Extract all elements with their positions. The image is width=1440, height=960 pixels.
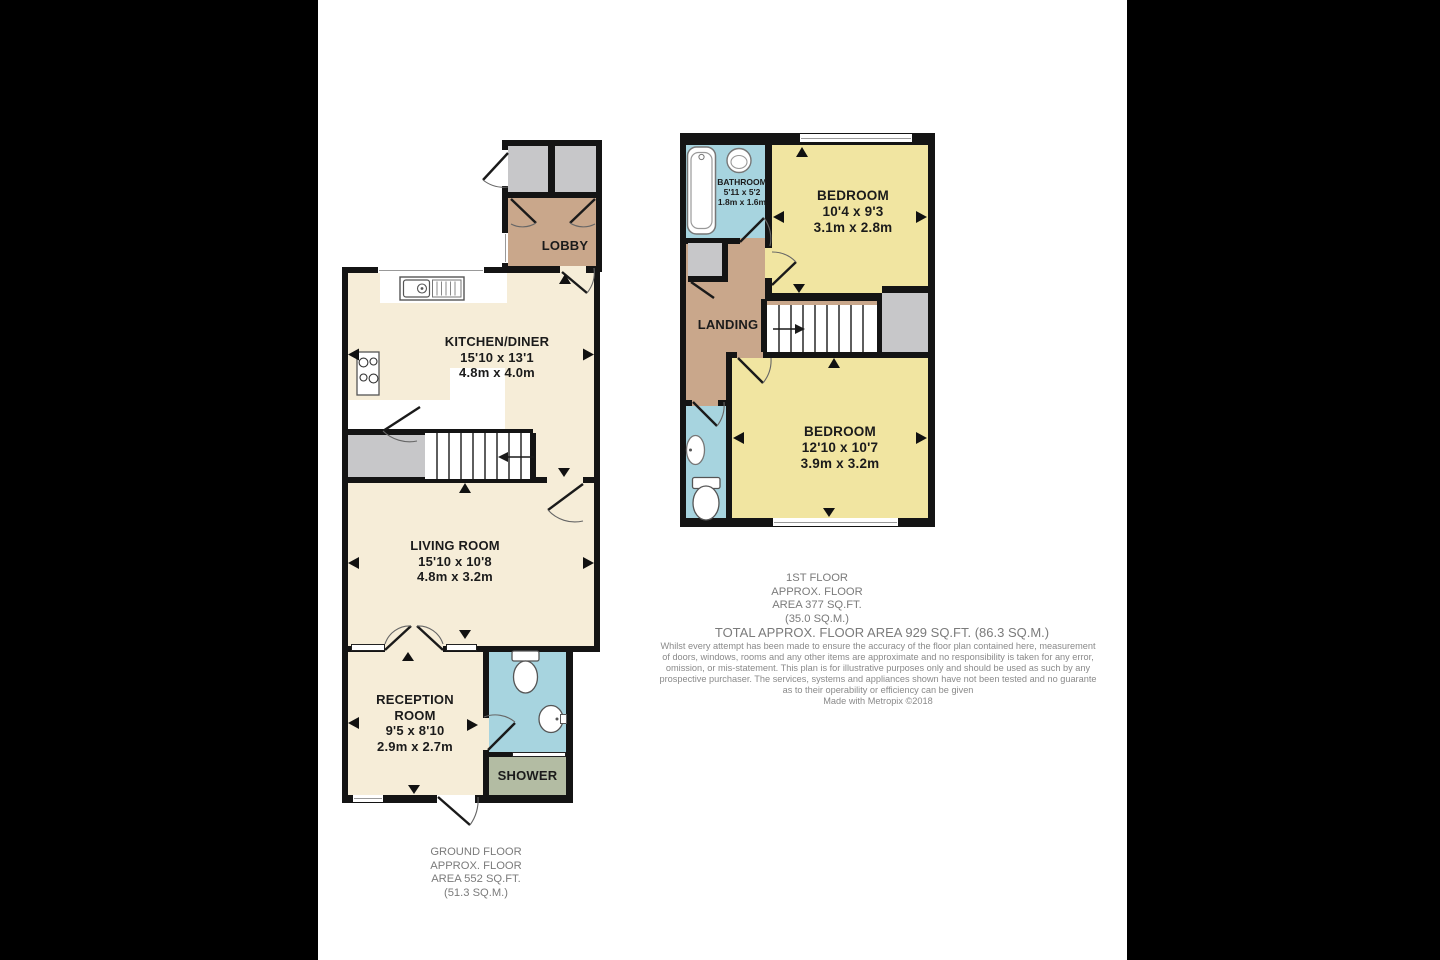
plan-geometry xyxy=(738,358,763,383)
disclaimer-line: Whilst every attempt has been made to en… xyxy=(643,641,1113,652)
caption-line: APPROX. FLOOR xyxy=(717,586,917,600)
wc-toilet-icon xyxy=(693,478,721,521)
disclaimer-line: of doors, windows, rooms and any other i… xyxy=(643,652,1113,663)
wc-basin-icon xyxy=(687,436,705,465)
plan-geometry xyxy=(740,218,764,242)
plan-geometry xyxy=(796,147,808,157)
metropix-credit: Made with Metropix ©2018 xyxy=(643,696,1113,707)
disclaimer-line: as to their operability or efficiency ca… xyxy=(643,685,1113,696)
plan-geometry xyxy=(823,508,835,517)
plan-geometry xyxy=(828,358,840,368)
door-leaves xyxy=(691,218,796,426)
plan-geometry xyxy=(689,449,692,452)
plan-geometry xyxy=(693,486,719,520)
plan-geometry xyxy=(691,282,714,298)
plan-geometry xyxy=(793,284,805,293)
opening-markers xyxy=(733,147,927,517)
total-area-line: TOTAL APPROX. FLOOR AREA 929 SQ.FT. (86.… xyxy=(682,625,1082,641)
plan-geometry xyxy=(772,262,796,285)
bathroom-basin-icon xyxy=(727,149,751,173)
caption-line: (35.0 SQ.M.) xyxy=(717,613,917,627)
first-floor-plan: BATHROOM 5'11 x 5'2 1.8m x 1.6m BEDROOM … xyxy=(318,0,1127,960)
stairs-direction-arrow xyxy=(773,324,805,334)
caption-line: 1ST FLOOR xyxy=(717,572,917,586)
plan-geometry xyxy=(916,211,927,223)
disclaimer: Whilst every attempt has been made to en… xyxy=(643,641,1113,706)
floorplan-canvas: SHOWER LOBBY KITCHEN/DINER 15'10 x 13'1 … xyxy=(318,0,1127,960)
door-swings xyxy=(717,218,796,426)
plan-geometry xyxy=(733,432,744,444)
disclaimer-line: prospective purchaser. The services, sys… xyxy=(643,674,1113,685)
plan-geometry xyxy=(763,358,771,383)
plan-geometry xyxy=(717,402,724,426)
disclaimer-line: omission, or mis-statement. This plan is… xyxy=(643,663,1113,674)
bathtub-icon xyxy=(688,147,716,234)
caption-line: AREA 377 SQ.FT. xyxy=(717,599,917,613)
first-floor-symbols xyxy=(318,0,1127,960)
plan-geometry xyxy=(693,402,717,426)
first-floor-caption: 1ST FLOOR APPROX. FLOOR AREA 377 SQ.FT. … xyxy=(717,572,917,626)
plan-geometry xyxy=(773,211,784,223)
plan-geometry xyxy=(764,218,771,246)
plan-geometry xyxy=(916,432,927,444)
page: { "ground_floor": { "rooms": { "lobby": … xyxy=(0,0,1440,960)
plan-geometry xyxy=(699,154,704,159)
plan-geometry xyxy=(772,252,796,262)
